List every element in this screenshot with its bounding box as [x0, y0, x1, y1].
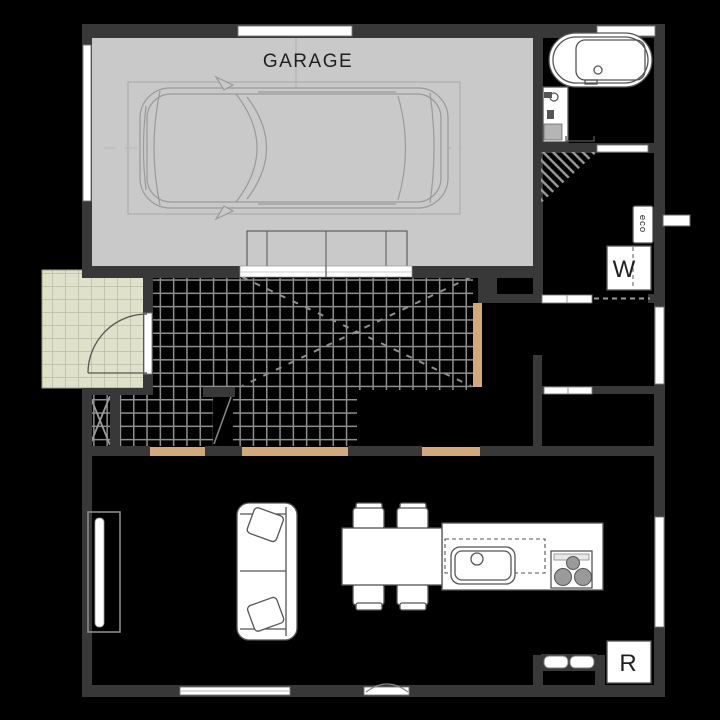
wall-segment	[82, 388, 92, 697]
chair	[353, 584, 384, 605]
garage-left-window	[83, 45, 91, 201]
burner	[555, 569, 572, 586]
porch-tiles	[42, 270, 147, 388]
floor-plan: eco W R	[0, 0, 720, 720]
bath-stool	[544, 124, 562, 140]
faucet	[471, 553, 483, 565]
dining-table	[342, 528, 442, 585]
wall-segment	[348, 446, 422, 456]
chair	[356, 603, 382, 610]
washroom-window	[655, 307, 664, 384]
heater-pipe	[663, 215, 690, 226]
wall-segment	[412, 266, 533, 278]
bath-door-opening	[597, 145, 648, 152]
stove	[551, 551, 592, 588]
wall-segment	[110, 393, 120, 447]
burner	[567, 557, 580, 570]
kitchen-island	[442, 523, 603, 590]
chair	[397, 508, 428, 529]
kitchen-sink	[451, 547, 515, 584]
car-top-view	[140, 77, 448, 219]
entry-door-opening	[144, 313, 152, 374]
garage-top-window	[238, 26, 352, 36]
refrigerator: R	[607, 641, 651, 683]
kitchen-window	[655, 517, 664, 627]
tv-screen	[95, 518, 104, 627]
chair	[400, 603, 426, 610]
wall-segment	[205, 446, 242, 456]
washer-label: W	[613, 256, 636, 283]
water-heater-label: eco	[637, 215, 648, 233]
garage-label: GARAGE	[263, 51, 353, 72]
garage-inner-opening	[240, 266, 412, 277]
fridge-label: R	[619, 650, 636, 677]
wall-segment	[203, 387, 235, 397]
wall-segment	[533, 355, 542, 455]
garage-door-unit	[247, 231, 407, 267]
washing-machine: W	[607, 246, 651, 290]
sliding-door-lower	[544, 387, 592, 394]
wall-segment	[82, 446, 150, 456]
wall-segment	[480, 446, 655, 456]
chair	[397, 584, 428, 605]
wall-segment	[478, 294, 543, 303]
burner	[575, 569, 592, 586]
sofa	[237, 503, 297, 640]
wall-segment	[82, 266, 240, 278]
bathtub	[549, 33, 652, 87]
chair	[353, 508, 384, 529]
